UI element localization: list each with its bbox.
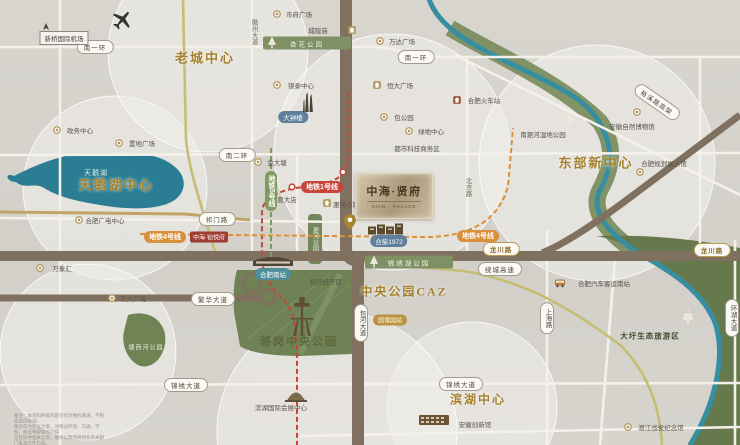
project-name: 中海·贤府 <box>366 183 421 199</box>
disclaimer-line: 备注：本资料所载内容仅作为要约邀请，不构成合同承诺。 <box>14 413 107 424</box>
map-disclaimer: 备注：本资料所载内容仅作为要约邀请，不构成合同承诺。图示仅为区位示意，对周边环境… <box>14 413 107 445</box>
project-subtitle: · XIAN · PALACE · <box>367 201 421 209</box>
location-map: 天鹅湖中心老城中心东部新中心中央公园CAZ滨湖中心骆岗中央公园天鹅湖塘西河公园淝… <box>0 0 740 445</box>
project-plaque: 中海·贤府 · XIAN · PALACE · <box>355 173 433 219</box>
map-base-layers <box>0 0 740 445</box>
disclaimer-line: 旨在提供相关信息，最终以政府规划及有关部门批准文件为准。 <box>14 435 107 445</box>
disclaimer-line: 图示仅为区位示意，对周边环境、交通、学校、商业等配套的介绍 <box>14 424 107 435</box>
